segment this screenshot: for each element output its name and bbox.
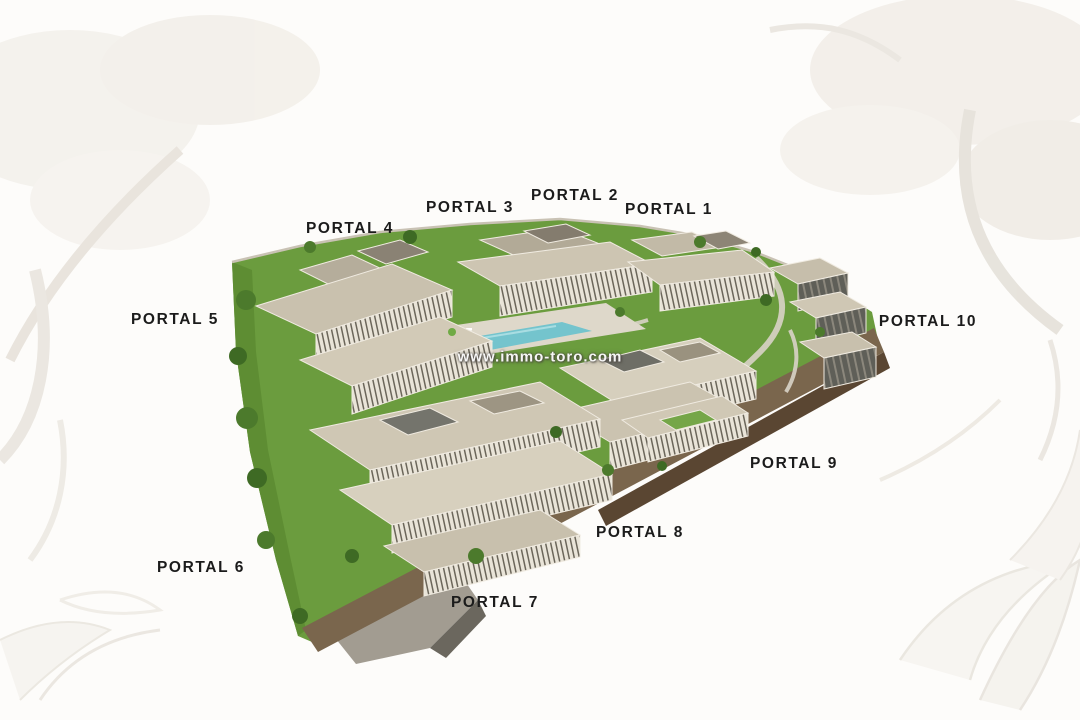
portal-label-9: PORTAL 9	[750, 455, 838, 473]
portal-label-2: PORTAL 2	[531, 187, 619, 205]
portal-label-7: PORTAL 7	[451, 594, 539, 612]
portal-label-4: PORTAL 4	[306, 220, 394, 238]
promo-render-page: PORTAL 1 PORTAL 2 PORTAL 3 PORTAL 4 PORT…	[0, 0, 1080, 720]
portal-label-3: PORTAL 3	[426, 199, 514, 217]
portal-label-8: PORTAL 8	[596, 524, 684, 542]
watermark-text: www.immo-toro.com	[458, 349, 623, 366]
portal-label-5: PORTAL 5	[131, 311, 219, 329]
portal-label-10: PORTAL 10	[879, 313, 977, 331]
portal-label-1: PORTAL 1	[625, 201, 713, 219]
portal-label-6: PORTAL 6	[157, 559, 245, 577]
